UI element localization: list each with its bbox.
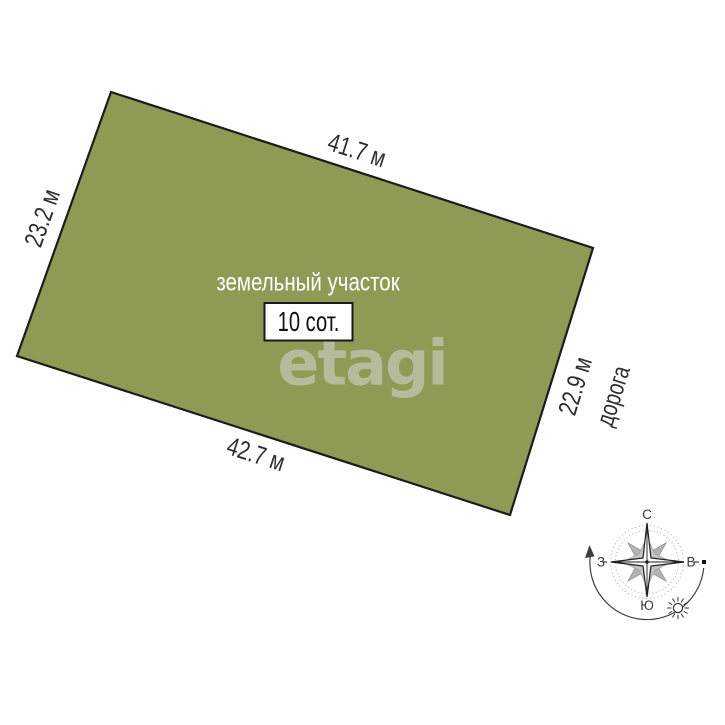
land-plot-diagram: etagi земельный участок 10 сот. 41.7 м 2… — [0, 0, 725, 725]
area-badge: 10 сот. — [265, 303, 353, 341]
compass-rotation-arrow-head — [585, 545, 595, 558]
road-label: дорога — [591, 362, 636, 429]
compass-label-north: С — [642, 507, 652, 522]
compass-star-main — [611, 523, 684, 597]
compass-label-east: В — [686, 555, 695, 570]
compass-label-west: З — [597, 555, 605, 570]
plot-title: земельный участок — [216, 268, 400, 296]
compass-label-south: Ю — [640, 598, 654, 613]
plot-plan-svg: etagi земельный участок 10 сот. 41.7 м 2… — [0, 0, 725, 725]
area-badge-label: 10 сот. — [278, 307, 340, 338]
compass-center-dot — [645, 560, 649, 564]
compass-rose: С Ю З В — [585, 507, 706, 620]
dimension-label-right: 22.9 м — [552, 354, 597, 419]
compass-sun-icon — [667, 597, 689, 619]
compass-east-dot — [702, 560, 706, 564]
